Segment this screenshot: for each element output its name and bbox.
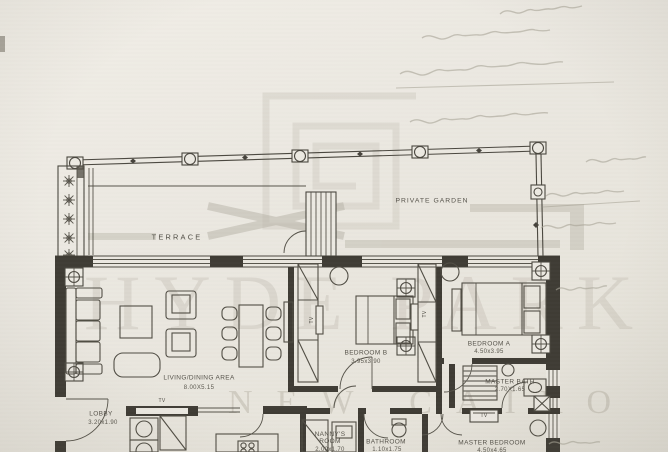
- nannys-room-dims: 2.00x1.70: [315, 447, 345, 452]
- bedroom-b-dims: 3.95x3.90: [351, 359, 381, 365]
- lobby-dims: 3.20x1.90: [88, 420, 118, 426]
- master-bedroom-dims: 4.50x4.65: [477, 448, 507, 452]
- living-room-label: LIVING/DINING AREA: [163, 375, 234, 382]
- tv-label: TV: [422, 311, 428, 318]
- tv-label: TV: [309, 317, 315, 324]
- bathroom-dims: 1.10x1.75: [372, 447, 402, 452]
- floorplan-photo: HYDE PARK NEW CAIRO: [0, 0, 668, 452]
- private-garden-label: PRIVATE GARDEN: [395, 198, 468, 205]
- master-bath-dims: 2.70X1.65: [495, 387, 526, 393]
- bedroom-a-dims: 4.50x3.95: [474, 349, 504, 355]
- plan-labels: TERRACE PRIVATE GARDEN LIVING/DINING ARE…: [0, 0, 668, 452]
- bedroom-a-label: BEDROOM A: [468, 341, 511, 348]
- bathroom-label: BATHROOM: [366, 439, 406, 446]
- bedroom-b-label: BEDROOM B: [345, 350, 388, 357]
- tv-label: TV: [481, 413, 488, 419]
- tv-label: TV: [159, 398, 166, 404]
- master-bedroom-label: MASTER BEDROOM: [458, 440, 525, 447]
- lobby-label: LOBBY: [89, 411, 112, 418]
- master-bath-label: MASTER BATH: [485, 379, 535, 386]
- terrace-label: TERRACE: [152, 233, 203, 242]
- living-room-dims: 8.00X5.15: [184, 385, 215, 391]
- nannys-room-label: NANNY'S ROOM: [307, 431, 353, 445]
